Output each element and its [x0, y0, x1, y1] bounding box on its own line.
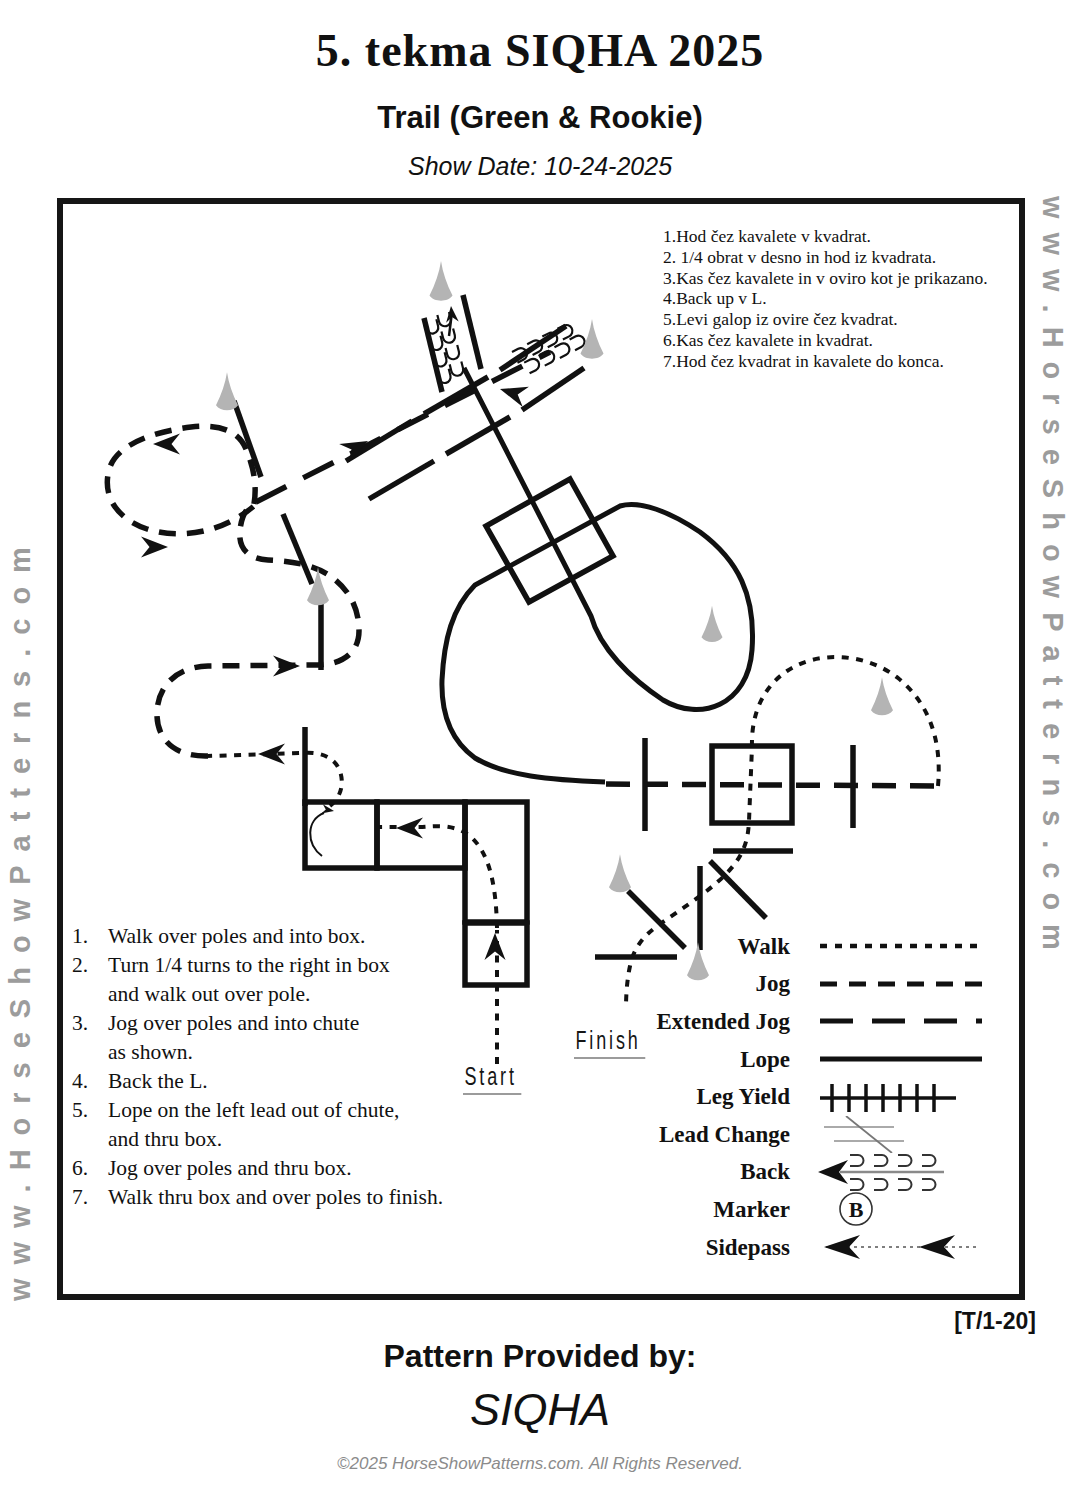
en-item: 7. Walk thru box and over poles to finis… [72, 1183, 472, 1212]
legend-row-jog: Jog [598, 966, 1014, 1004]
en-item: 5. Lope on the left lead out of chute,an… [72, 1096, 472, 1154]
walk-through-boxes [372, 826, 497, 928]
legend-row-lead-change: Lead Change [598, 1116, 1014, 1154]
copyright-text: ©2025 HorseShowPatterns.com. All Rights … [0, 1454, 1080, 1474]
legend-row-extended-jog: Extended Jog [598, 1003, 1014, 1041]
walk-out-over-pole [208, 753, 342, 806]
sl-line: 2. 1/4 obrat v desno in hod iz kvadrata. [663, 247, 1031, 268]
instructions-slovenian: 1.Hod čez kavalete v kvadrat. 2. 1/4 obr… [663, 226, 1031, 372]
leg-yield-icon [816, 1079, 988, 1116]
obstacles [234, 295, 853, 985]
en-item: 3. Jog over poles and into chuteas shown… [72, 1009, 472, 1067]
lead-change-icon [816, 1116, 988, 1153]
legend-row-leg-yield: Leg Yield [598, 1078, 1014, 1116]
jog-line-icon [816, 966, 988, 1003]
sl-line: 4.Back up v L. [663, 288, 1031, 309]
pattern-diagram [0, 0, 1080, 1493]
en-item: 1. Walk over poles and into box. [72, 922, 472, 951]
pattern-code: [T/1-20] [0, 1308, 1036, 1335]
jog-serpentine [157, 504, 359, 756]
legend-row-back: Back [598, 1154, 1014, 1192]
sl-line: 7.Hod čez kvadrat in kavalete do konca. [663, 351, 1031, 372]
legend-row-marker: Marker B [598, 1191, 1014, 1229]
walk-line-icon [816, 928, 988, 965]
legend-row-sidepass: Sidepass [598, 1229, 1014, 1267]
sl-line: 5.Levi galop iz ovire čez kvadrat. [663, 309, 1031, 330]
finish-label: Finish [574, 1026, 645, 1059]
en-item: 4. Back the L. [72, 1067, 472, 1096]
en-item: 6. Jog over poles and thru box. [72, 1154, 472, 1183]
sidepass-icon [816, 1229, 988, 1266]
instructions-english: 1. Walk over poles and into box. 2. Turn… [72, 922, 472, 1212]
provided-by-label: Pattern Provided by: [0, 1338, 1080, 1375]
provider-name: SIQHA [0, 1384, 1080, 1436]
en-item: 2. Turn 1/4 turns to the right in boxand… [72, 951, 472, 1009]
sl-line: 6.Kas čez kavalete in kvadrat. [663, 330, 1031, 351]
jog-circle [107, 426, 255, 534]
back-icon [816, 1154, 988, 1191]
rotated-square [486, 479, 613, 602]
legend-row-lope: Lope [598, 1041, 1014, 1079]
marker-icon: B [816, 1191, 988, 1228]
svg-text:B: B [849, 1197, 864, 1222]
quarter-turn-arrow [310, 804, 335, 856]
lope-line-icon [816, 1041, 988, 1078]
legend-row-walk: Walk [598, 928, 1014, 966]
sl-line: 1.Hod čez kavalete v kvadrat. [663, 226, 1031, 247]
extended-jog-line-icon [816, 1003, 988, 1040]
sl-line: 3.Kas čez kavalete in v oviro kot je pri… [663, 268, 1031, 289]
jog-pole-corridor [606, 784, 938, 786]
pattern-sheet: 5. tekma SIQHA 2025 Trail (Green & Rooki… [0, 0, 1080, 1493]
start-label: Start [463, 1062, 521, 1095]
legend: Walk Jog Extended Jog Lope Leg Yield [598, 928, 1014, 1266]
direction-arrows [141, 305, 529, 960]
